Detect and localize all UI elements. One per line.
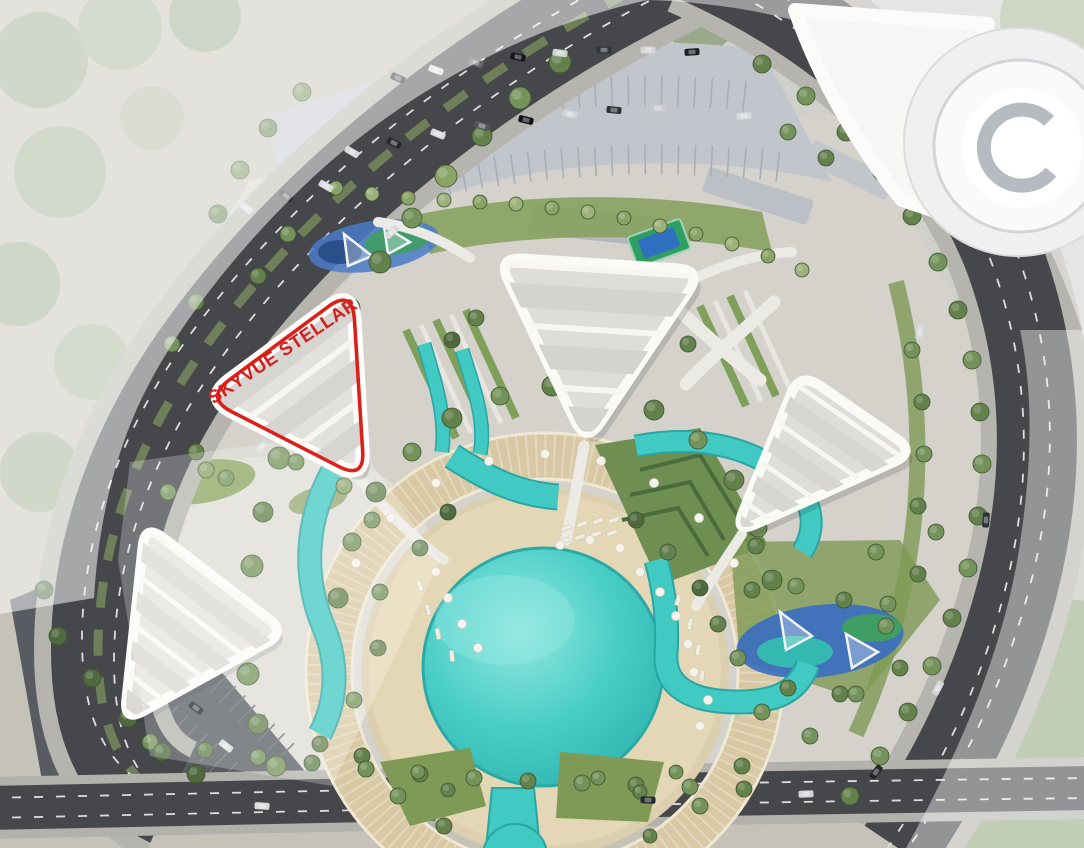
south-lawn-east <box>556 752 664 822</box>
site-plan-render: SKYVUE STELLAR <box>0 0 1084 848</box>
